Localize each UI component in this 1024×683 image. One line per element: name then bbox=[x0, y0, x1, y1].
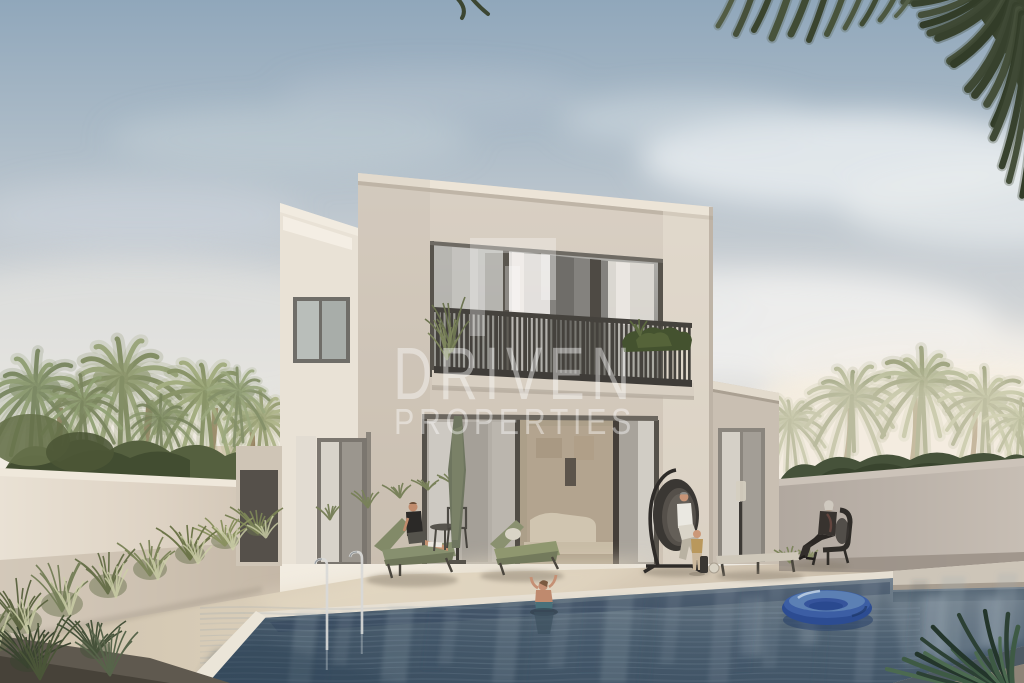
svg-text:PROPERTIES: PROPERTIES bbox=[394, 403, 636, 443]
